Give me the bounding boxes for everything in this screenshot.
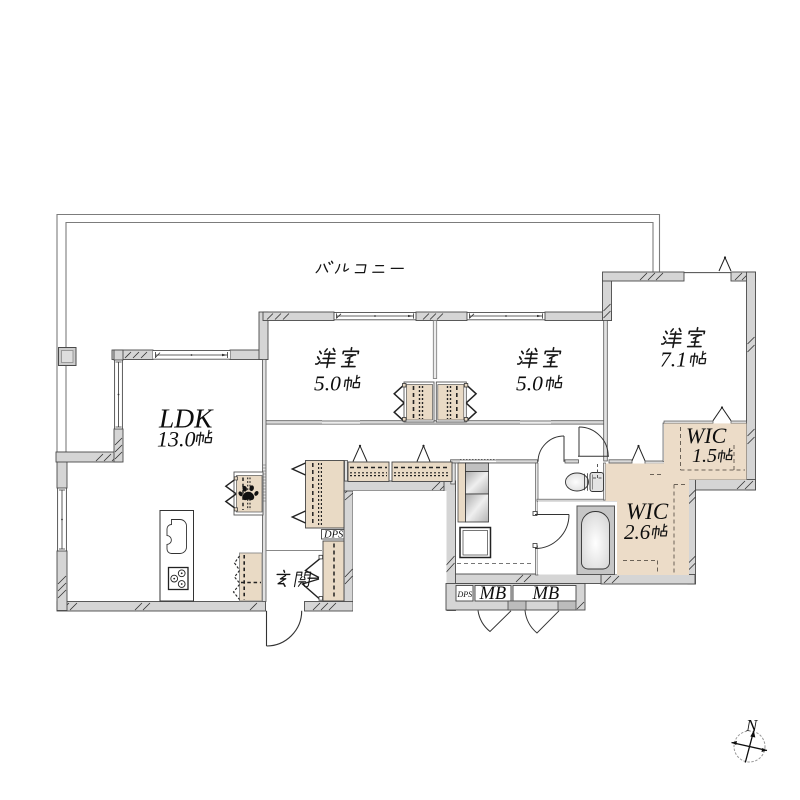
- svg-text:5.0: 5.0: [314, 372, 341, 396]
- svg-text:2.6: 2.6: [624, 520, 651, 544]
- svg-text:DPS: DPS: [457, 590, 473, 599]
- svg-text:5.0: 5.0: [516, 372, 543, 396]
- svg-text:1.5: 1.5: [692, 445, 717, 467]
- svg-text:MB: MB: [479, 584, 507, 604]
- svg-text:13.0: 13.0: [157, 427, 196, 452]
- svg-text:N: N: [745, 716, 759, 735]
- svg-text:MB: MB: [532, 584, 560, 604]
- svg-text:DPS: DPS: [323, 530, 344, 541]
- svg-text:7.1: 7.1: [660, 348, 687, 372]
